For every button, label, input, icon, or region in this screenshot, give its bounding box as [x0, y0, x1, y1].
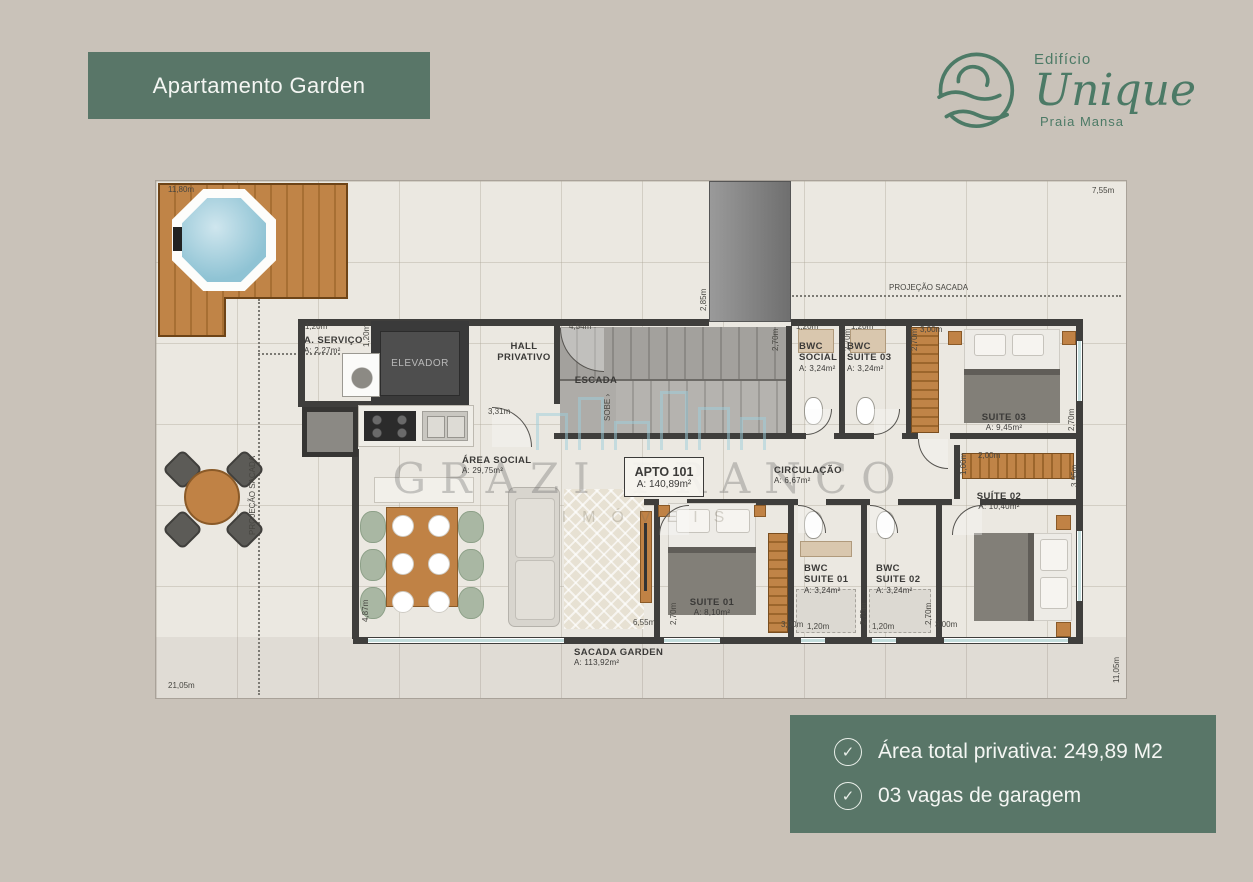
room-label: SUÍTE 02A: 10,40m² [977, 491, 1021, 512]
dimension-label: 3,31m [488, 407, 510, 416]
wave-circle-icon [928, 40, 1020, 141]
dimension-label: 1,20m [796, 322, 818, 331]
room-label: ÁREA SOCIALA: 29,75m² [462, 455, 532, 476]
room-label: CIRCULAÇÃOA: 6,67m² [774, 465, 842, 486]
room-label: HALLPRIVATIVO [497, 341, 550, 364]
floor-plan: ELEVADOR [155, 180, 1127, 699]
room-label: SACADA GARDENA: 113,92m² [574, 647, 663, 668]
brand-location: Praia Mansa [1040, 115, 1196, 128]
dimension-label: 1,20m [807, 622, 829, 631]
room-label: ESCADA [575, 375, 618, 386]
brand-text: Edifício Unique Praia Mansa [1034, 52, 1196, 128]
dimension-label: 2,70m [1067, 409, 1076, 431]
dimension-label: 2,70m [924, 603, 933, 625]
info-area-text: Área total privativa: 249,89 M2 [878, 740, 1163, 764]
info-garage-text: 03 vagas de garagem [878, 784, 1081, 808]
check-circle-icon: ✓ [834, 738, 862, 766]
dimension-label: 11,80m [168, 185, 194, 194]
dimension-label: 2,70m [669, 603, 678, 625]
dimension-label: 1,20m [851, 322, 873, 331]
dimension-label: 4,54m [569, 322, 591, 331]
room-label: SUITE 03A: 9,45m² [982, 412, 1026, 433]
brand-logo: Edifício Unique Praia Mansa [928, 40, 1218, 140]
dimension-label: 3,00m [781, 620, 803, 629]
dimension-label: 1,00m [959, 453, 968, 475]
check-circle-icon: ✓ [834, 782, 862, 810]
dimension-label: 3,95m [1070, 465, 1079, 487]
dimension-label: 3,00m [920, 325, 942, 334]
dimension-label: 1,20m [872, 622, 894, 631]
dimension-label: 7,55m [1092, 186, 1114, 195]
dimension-label: 2,00m [978, 451, 1000, 460]
info-box: ✓ Área total privativa: 249,89 M2 ✓ 03 v… [790, 715, 1216, 833]
dimension-label: 1,20m [305, 322, 327, 331]
info-row-area: ✓ Área total privativa: 249,89 M2 [834, 738, 1216, 766]
page-title: Apartamento Garden [153, 73, 366, 99]
info-row-garage: ✓ 03 vagas de garagem [834, 782, 1216, 810]
room-label: BWCSOCIALA: 3,24m² [799, 341, 837, 373]
dimension-label: 21,05m [168, 681, 195, 690]
room-label: BWCSUITE 02A: 3,24m² [876, 563, 920, 595]
room-label: A. SERVIÇOA: 2,27m² [304, 335, 363, 356]
brand-name: Unique [1034, 69, 1196, 113]
dimension-label: PROJEÇÃO SACADA [889, 283, 968, 292]
dimension-label: 1,20m [362, 325, 371, 347]
dimension-label: 2,85m [699, 289, 708, 311]
dimension-label: SOBE › [603, 394, 612, 421]
dimension-label: 2,70m [771, 329, 780, 351]
room-label: BWCSUITE 01A: 3,24m² [804, 563, 848, 595]
dimension-label: 2,70m [910, 329, 919, 351]
plan-labels: A. SERVIÇOA: 2,27m²HALLPRIVATIVOESCADABW… [156, 181, 1126, 698]
dimension-label: 3,00m [935, 620, 957, 629]
title-banner: Apartamento Garden [88, 52, 430, 119]
room-label: BWCSUITE 03A: 3,24m² [847, 341, 891, 373]
dimension-label: 2,70m [843, 329, 852, 351]
dimension-label: 11,05m [1112, 657, 1121, 683]
room-label: SUITE 01A: 8,10m² [690, 597, 734, 618]
dimension-label: PROJEÇÃO SACADA [248, 456, 257, 535]
dimension-label: 6,55m [633, 618, 655, 627]
dimension-label: 2,70m [859, 603, 868, 625]
dimension-label: 4,87m [361, 600, 370, 622]
